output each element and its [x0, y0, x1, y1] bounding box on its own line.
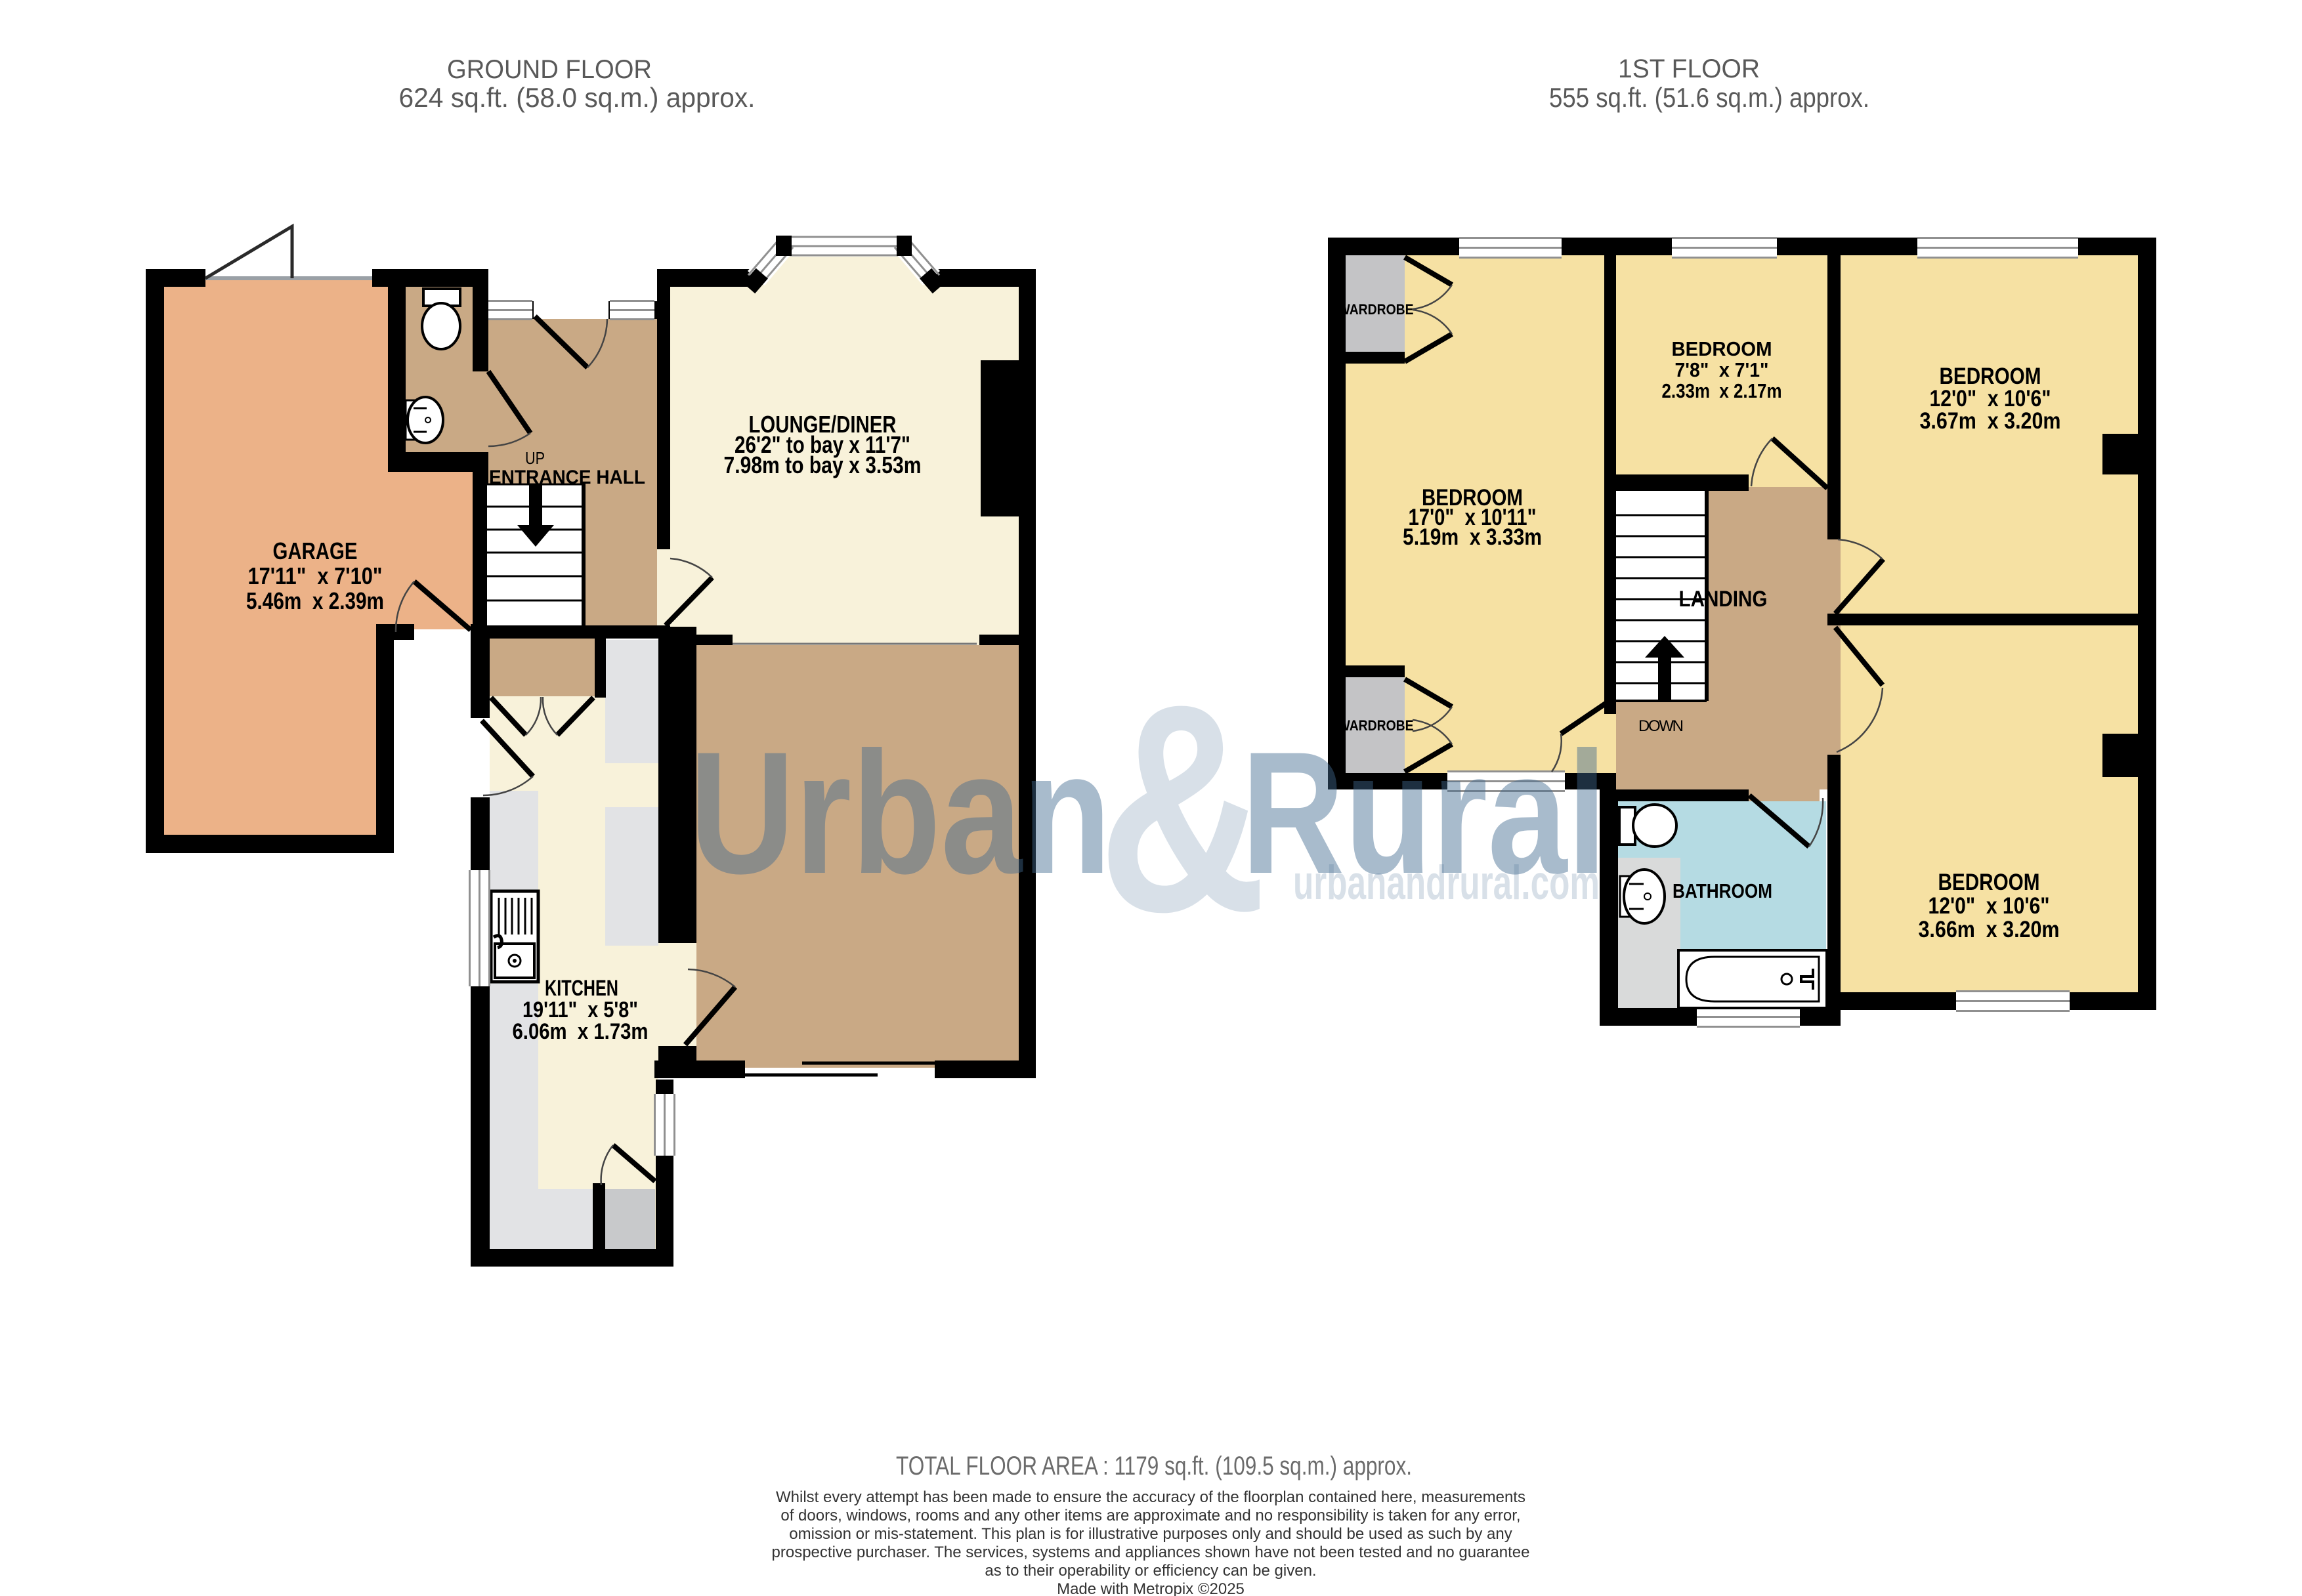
- svg-text:BEDROOM: BEDROOM: [1938, 870, 2040, 895]
- svg-text:2.33m x 2.17m: 2.33m x 2.17m: [1662, 379, 1782, 402]
- svg-text:TOTAL FLOOR AREA : 1179 sq.ft.: TOTAL FLOOR AREA : 1179 sq.ft. (109.5 sq…: [896, 1452, 1412, 1480]
- svg-text:Whilst every attempt has been: Whilst every attempt has been made to en…: [776, 1488, 1525, 1506]
- svg-text:7.98m to bay x 3.53m: 7.98m to bay x 3.53m: [724, 451, 922, 478]
- svg-text:17'11" x 7'10": 17'11" x 7'10": [248, 562, 383, 589]
- svg-text:ENTRANCE HALL: ENTRANCE HALL: [489, 467, 645, 488]
- svg-text:LANDING: LANDING: [1679, 587, 1768, 612]
- svg-text:DOWN: DOWN: [1638, 717, 1684, 735]
- svg-text:Made with Metropix ©2025: Made with Metropix ©2025: [1057, 1580, 1245, 1596]
- svg-text:urbanandrural.com: urbanandrural.com: [1293, 856, 1600, 910]
- svg-text:BATHROOM: BATHROOM: [1673, 879, 1772, 902]
- svg-text:of doors, windows, rooms and a: of doors, windows, rooms and any other i…: [780, 1507, 1520, 1524]
- svg-text:UP: UP: [525, 448, 545, 468]
- svg-text:WARDROBE: WARDROBE: [1338, 301, 1414, 318]
- svg-text:12'0" x 10'6": 12'0" x 10'6": [1929, 893, 2050, 919]
- svg-text:3.66m x 3.20m: 3.66m x 3.20m: [1919, 917, 2060, 942]
- svg-text:omission or mis-statement. Thi: omission or mis-statement. This plan is …: [789, 1525, 1512, 1543]
- svg-text:624 sq.ft. (58.0 sq.m.) approx: 624 sq.ft. (58.0 sq.m.) approx.: [399, 82, 756, 113]
- svg-text:7'8" x 7'1": 7'8" x 7'1": [1675, 358, 1769, 381]
- svg-text:as to their operability or eff: as to their operability or efficiency ca…: [985, 1562, 1316, 1580]
- svg-text:5.19m x 3.33m: 5.19m x 3.33m: [1403, 524, 1542, 550]
- svg-text:Urban: Urban: [689, 716, 1111, 910]
- svg-text:3.67m x 3.20m: 3.67m x 3.20m: [1920, 408, 2061, 434]
- svg-text:6.06m x 1.73m: 6.06m x 1.73m: [513, 1019, 649, 1044]
- svg-text:GARAGE: GARAGE: [273, 537, 358, 564]
- svg-text:555 sq.ft. (51.6 sq.m.) approx: 555 sq.ft. (51.6 sq.m.) approx.: [1549, 82, 1869, 113]
- svg-text:BEDROOM: BEDROOM: [1672, 337, 1772, 360]
- svg-text:5.46m x 2.39m: 5.46m x 2.39m: [246, 587, 384, 614]
- svg-text:1ST FLOOR: 1ST FLOOR: [1618, 54, 1760, 83]
- svg-text:GROUND FLOOR: GROUND FLOOR: [447, 55, 652, 84]
- svg-text:prospective purchaser. The ser: prospective purchaser. The services, sys…: [772, 1543, 1530, 1561]
